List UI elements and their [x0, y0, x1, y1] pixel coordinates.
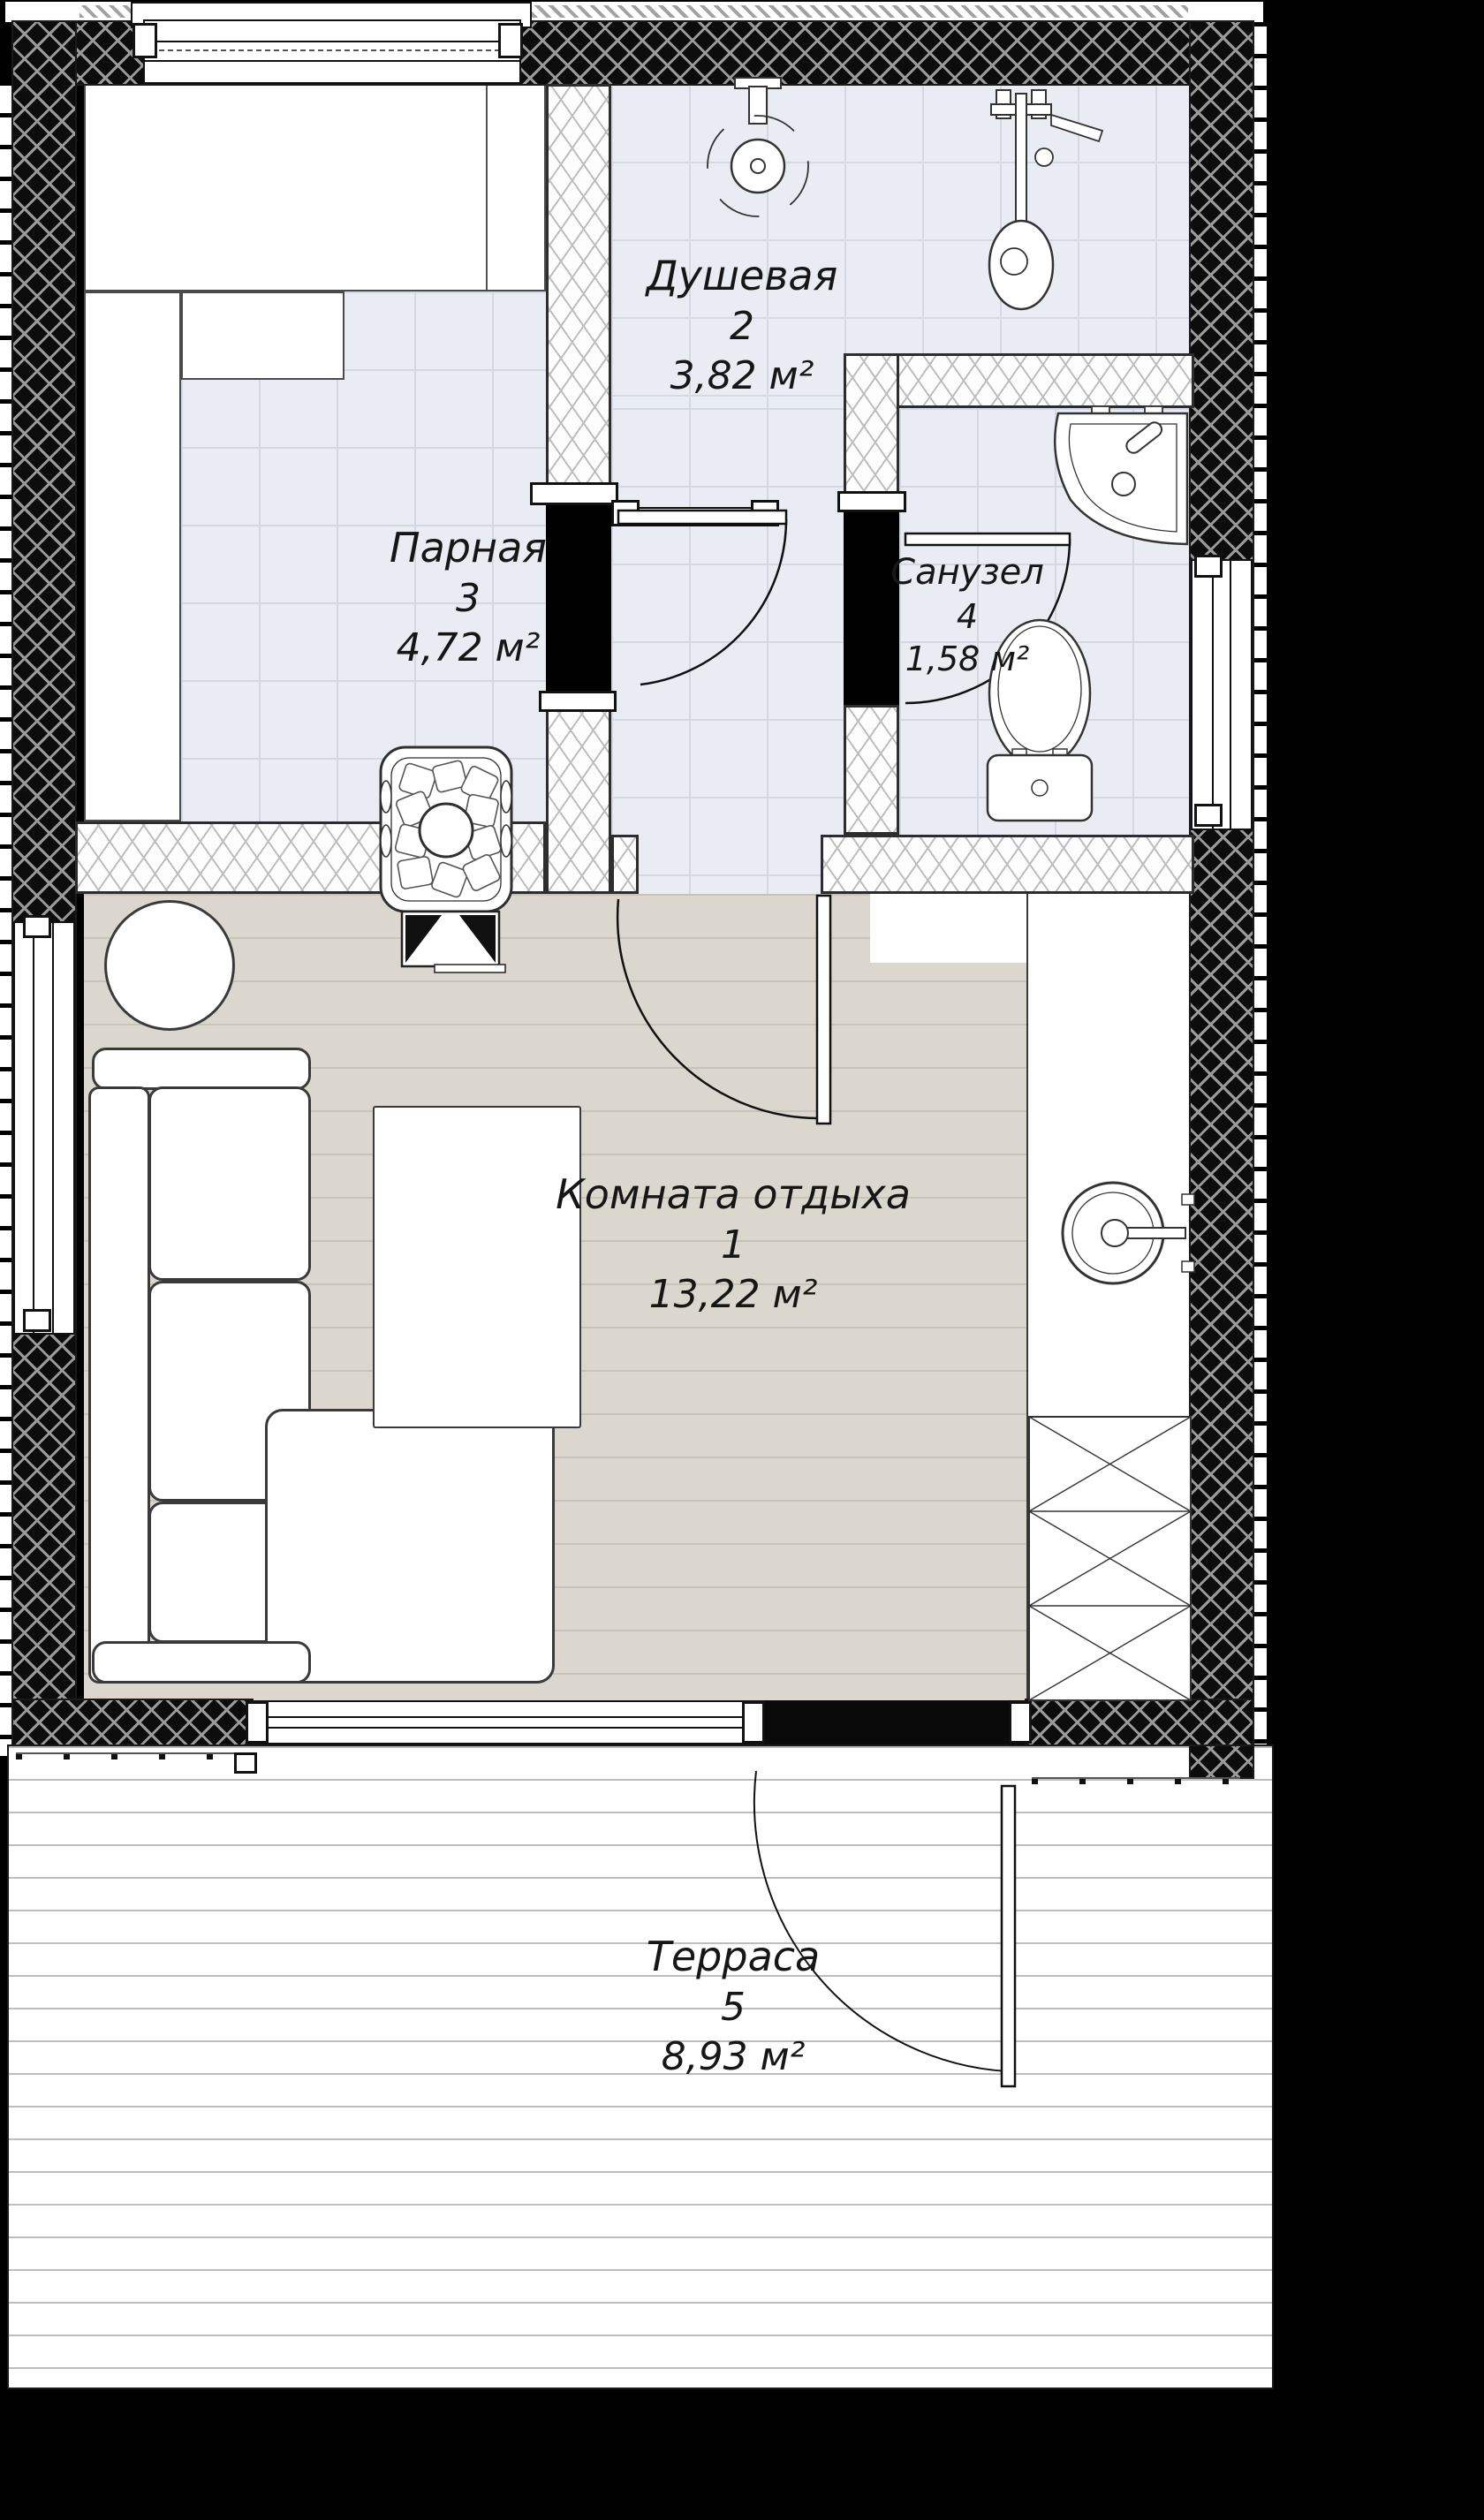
room-area: 1,58 м²	[795, 638, 1139, 680]
ceiling-shower-icon	[708, 78, 808, 216]
corner-sink-icon	[1055, 406, 1187, 544]
room-area: 3,82 м²	[565, 352, 919, 401]
cabinet-icon	[1029, 1417, 1191, 1700]
room-name: Комната отдыха	[530, 1168, 936, 1221]
shower-column-icon	[989, 90, 1102, 309]
room-number: 4	[795, 595, 1139, 638]
room-area: 8,93 м²	[530, 2032, 936, 2082]
label-terrace: Терраса 5 8,93 м²	[530, 1930, 936, 2082]
room-area: 4,72 м²	[291, 624, 645, 673]
room-name: Санузел	[795, 549, 1139, 595]
room-name: Терраса	[530, 1930, 936, 1983]
label-steam-room: Парная 3 4,72 м²	[291, 521, 645, 673]
label-shower-room: Душевая 2 3,82 м²	[565, 249, 919, 401]
room-name: Парная	[291, 521, 645, 574]
room-number: 2	[565, 302, 919, 352]
countertop-sink-icon	[1063, 1183, 1194, 1283]
room-number: 3	[291, 574, 645, 624]
label-lounge: Комната отдыха 1 13,22 м²	[530, 1168, 936, 1320]
sauna-stove-icon	[381, 747, 511, 912]
label-bathroom: Санузел 4 1,58 м²	[795, 549, 1139, 680]
lounge-door	[617, 896, 830, 1124]
floor-plan: Душевая 2 3,82 м² Парная 3 4,72 м² Сануз…	[0, 0, 1484, 2520]
stove-duct-icon	[402, 912, 505, 972]
room-area: 13,22 м²	[530, 1270, 936, 1320]
room-name: Душевая	[565, 249, 919, 302]
room-number: 1	[530, 1221, 936, 1270]
room-number: 5	[530, 1983, 936, 2032]
